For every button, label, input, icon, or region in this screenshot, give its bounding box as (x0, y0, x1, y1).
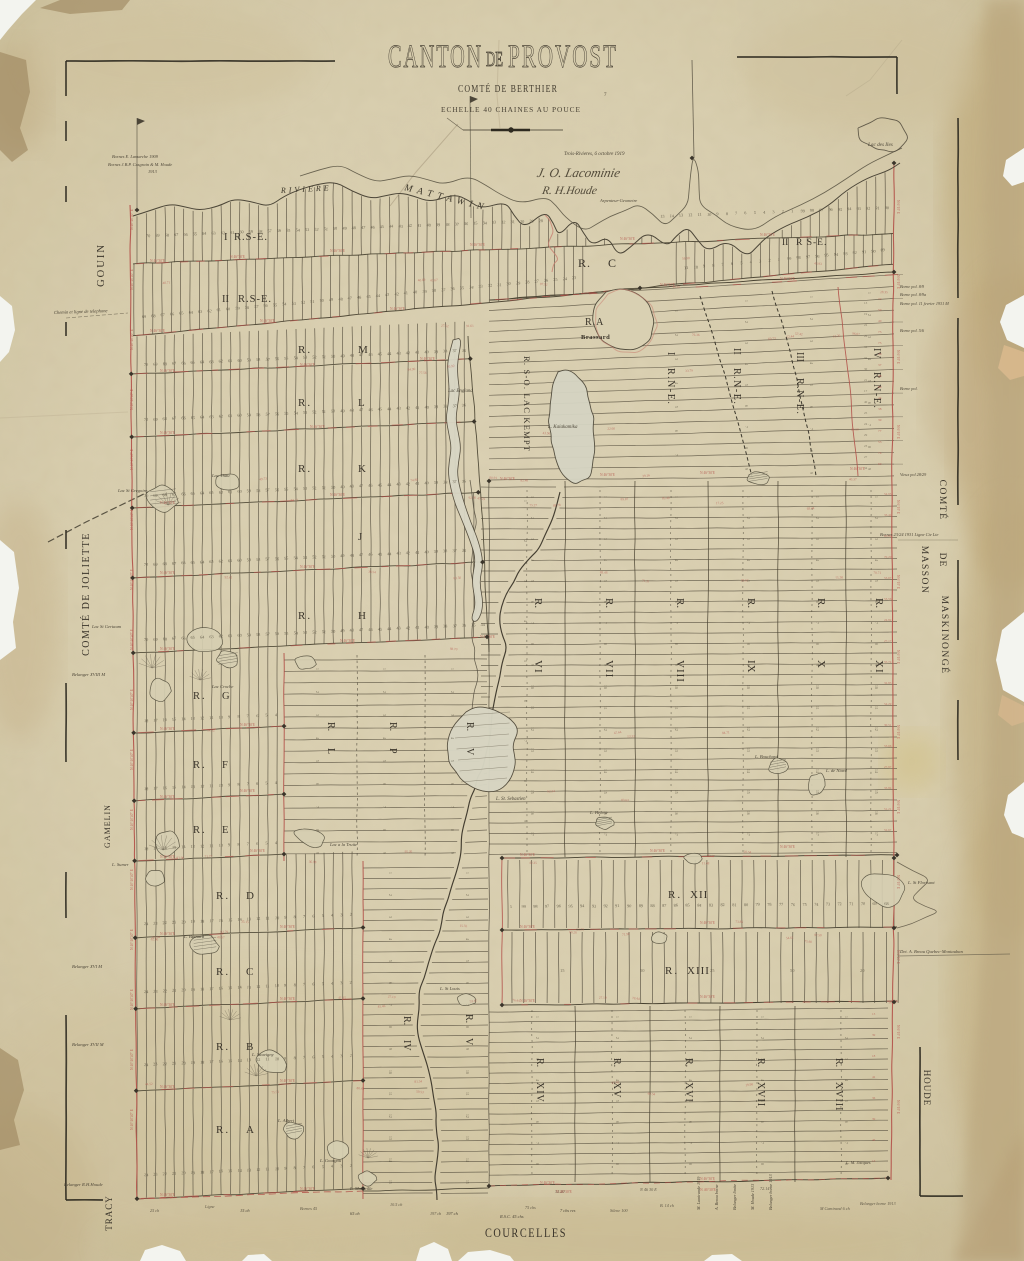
svg-text:16: 16 (163, 845, 167, 850)
svg-text:33.79: 33.79 (685, 369, 693, 373)
svg-text:R.: R. (216, 1041, 230, 1053)
svg-text:72: 72 (837, 901, 842, 906)
svg-text:21: 21 (172, 919, 177, 924)
svg-text:68: 68 (163, 492, 167, 497)
svg-text:62: 62 (219, 490, 224, 495)
svg-text:11: 11 (746, 706, 750, 710)
svg-text:11: 11 (684, 265, 689, 270)
svg-text:73: 73 (878, 330, 882, 334)
svg-text:41: 41 (417, 223, 422, 228)
svg-text:39: 39 (872, 1117, 876, 1121)
svg-text:10: 10 (694, 264, 698, 269)
svg-text:58: 58 (256, 557, 260, 562)
svg-text:58: 58 (256, 632, 261, 637)
svg-text:13: 13 (247, 984, 252, 989)
svg-text:R.: R. (463, 1014, 474, 1023)
svg-text:13: 13 (465, 1136, 469, 1140)
svg-text:95: 95 (568, 904, 572, 909)
svg-text:49: 49 (340, 484, 344, 489)
svg-text:N 46°30'E: N 46°30'E (330, 249, 346, 253)
svg-text:3: 3 (340, 912, 342, 917)
svg-text:9: 9 (284, 1056, 286, 1061)
svg-text:V: V (463, 1038, 474, 1046)
svg-text:51.21: 51.21 (884, 807, 892, 811)
svg-text:F: F (222, 760, 230, 771)
svg-text:2: 2 (465, 894, 469, 896)
svg-text:R.S-E.: R.S-E. (234, 232, 268, 243)
svg-text:7: 7 (303, 914, 305, 919)
svg-text:VIII: VIII (674, 660, 686, 683)
svg-text:17: 17 (530, 832, 534, 836)
svg-text:R.: R. (755, 1058, 766, 1067)
svg-text:N 40°40'40" E: N 40°40'40" E (130, 388, 134, 410)
svg-text:16: 16 (163, 785, 167, 790)
svg-text:15: 15 (660, 214, 665, 219)
svg-text:MASKINONGÉ: MASKINONGÉ (939, 596, 951, 675)
svg-text:N 6°19' E: N 6°19' E (896, 725, 900, 740)
svg-text:N 6°19' E: N 6°19' E (896, 650, 900, 665)
svg-text:7: 7 (247, 781, 249, 786)
svg-text:52: 52 (312, 554, 316, 559)
svg-text:17: 17 (874, 832, 878, 836)
svg-text:36: 36 (462, 623, 466, 628)
svg-text:95: 95 (824, 252, 829, 257)
svg-text:85.40: 85.40 (662, 496, 670, 501)
svg-text:39: 39 (434, 404, 439, 409)
svg-text:R.: R. (193, 691, 207, 702)
svg-text:XVII: XVII (755, 1082, 766, 1107)
svg-text:38: 38 (443, 348, 447, 353)
svg-text:17: 17 (815, 832, 819, 836)
svg-text:92: 92 (866, 206, 870, 211)
svg-text:7: 7 (809, 428, 813, 430)
svg-text:8: 8 (293, 1165, 295, 1170)
svg-text:29: 29 (864, 433, 868, 437)
svg-text:20: 20 (181, 987, 185, 992)
svg-text:N 46°30'E: N 46°30'E (340, 639, 356, 643)
svg-text:45: 45 (378, 552, 383, 557)
svg-text:Belanger XVII M: Belanger XVII M (72, 1042, 105, 1047)
svg-text:7: 7 (603, 622, 607, 624)
svg-text:7: 7 (246, 713, 249, 718)
svg-text:90: 90 (885, 205, 890, 210)
svg-text:65: 65 (191, 560, 195, 565)
svg-text:N 40°40'40" E: N 40°40'40" E (130, 448, 134, 470)
svg-text:43: 43 (385, 292, 390, 297)
svg-text:2: 2 (603, 517, 607, 519)
svg-text:75.27: 75.27 (529, 503, 537, 507)
svg-text:35: 35 (473, 220, 477, 225)
svg-text:6: 6 (535, 1121, 539, 1123)
svg-text:2: 2 (382, 691, 386, 693)
svg-text:R.: R. (401, 1016, 412, 1025)
svg-text:10: 10 (530, 685, 534, 689)
svg-text:4: 4 (688, 1079, 692, 1081)
svg-text:48: 48 (350, 353, 354, 358)
svg-text:8: 8 (615, 1163, 619, 1165)
svg-text:55.74: 55.74 (884, 660, 892, 664)
svg-text:N 46 30 E: N 46 30 E (639, 1187, 657, 1192)
svg-text:53.67: 53.67 (884, 576, 892, 580)
svg-text:51: 51 (322, 409, 326, 414)
svg-text:CANTON: CANTON (388, 39, 483, 75)
svg-text:8: 8 (530, 643, 534, 645)
svg-text:51: 51 (322, 554, 327, 559)
svg-text:42: 42 (394, 291, 398, 296)
svg-text:23: 23 (572, 275, 577, 280)
svg-text:45: 45 (366, 294, 370, 299)
svg-text:92: 92 (853, 250, 857, 255)
svg-text:3: 3 (809, 340, 813, 342)
svg-text:30.51: 30.51 (884, 723, 892, 727)
svg-text:92.42: 92.42 (224, 575, 232, 579)
svg-text:N 40°40'40" E: N 40°40'40" E (130, 328, 134, 350)
svg-text:15: 15 (560, 968, 565, 973)
svg-text:N 46°30'E: N 46°30'E (300, 565, 316, 569)
svg-text:9: 9 (523, 820, 527, 822)
svg-text:53.87: 53.87 (469, 999, 477, 1004)
svg-text:68: 68 (163, 361, 167, 366)
svg-text:12: 12 (688, 212, 692, 217)
svg-text:53: 53 (303, 410, 307, 415)
svg-text:III: III (794, 352, 805, 362)
svg-text:48: 48 (349, 407, 353, 412)
svg-text:93: 93 (857, 206, 861, 211)
svg-text:67: 67 (172, 635, 177, 640)
svg-text:4: 4 (815, 559, 819, 561)
svg-text:45: 45 (378, 627, 382, 632)
svg-text:L: L (325, 748, 336, 754)
svg-text:91.61: 91.61 (466, 324, 474, 328)
svg-text:8: 8 (809, 450, 813, 452)
svg-text:10: 10 (275, 915, 280, 920)
svg-text:93: 93 (592, 903, 597, 908)
svg-text:67: 67 (160, 312, 165, 317)
svg-text:11: 11 (209, 783, 213, 788)
svg-text:12: 12 (603, 727, 607, 731)
svg-text:66: 66 (181, 360, 186, 365)
svg-text:63: 63 (209, 634, 213, 639)
svg-text:N 40°40'40" E: N 40°40'40" E (130, 868, 134, 890)
svg-text:40.69: 40.69 (418, 278, 426, 283)
svg-text:65: 65 (179, 310, 184, 315)
svg-text:4: 4 (315, 737, 319, 739)
svg-text:91: 91 (875, 205, 879, 210)
svg-text:7: 7 (303, 982, 306, 987)
svg-text:23: 23 (153, 1172, 157, 1177)
svg-text:17: 17 (674, 832, 678, 836)
svg-text:50: 50 (331, 485, 335, 490)
svg-text:3: 3 (603, 538, 607, 540)
svg-text:R.: R. (216, 890, 230, 902)
svg-text:Borne pol. 8/9: Borne pol. 8/9 (900, 284, 925, 289)
svg-text:27.52: 27.52 (441, 324, 449, 329)
svg-text:25: 25 (710, 968, 715, 973)
svg-text:DE: DE (486, 47, 503, 71)
svg-text:11: 11 (265, 915, 269, 920)
svg-text:59: 59 (247, 632, 251, 637)
svg-text:16: 16 (219, 918, 224, 923)
svg-text:51: 51 (324, 226, 329, 231)
svg-text:14: 14 (674, 769, 678, 773)
svg-text:1: 1 (530, 496, 534, 498)
svg-text:II: II (222, 294, 229, 305)
svg-text:2: 2 (388, 894, 392, 896)
svg-text:3: 3 (867, 336, 871, 338)
svg-text:8: 8 (465, 1026, 469, 1028)
svg-text:TRACY: TRACY (104, 1195, 114, 1231)
svg-text:15: 15 (388, 1180, 392, 1184)
svg-text:63: 63 (209, 414, 213, 419)
svg-text:11: 11 (530, 706, 534, 710)
svg-text:10: 10 (815, 685, 819, 689)
svg-text:95.20: 95.20 (405, 850, 413, 854)
svg-text:B. 14 ch: B. 14 ch (660, 1203, 674, 1208)
svg-text:65 ch: 65 ch (350, 1211, 360, 1216)
svg-text:22: 22 (864, 323, 868, 327)
svg-text:12: 12 (256, 1167, 260, 1172)
svg-text:R.: R. (216, 966, 230, 978)
svg-text:15: 15 (465, 1180, 469, 1184)
svg-text:L. Kaiakamika: L. Kaiakamika (547, 425, 578, 430)
svg-text:36: 36 (462, 348, 467, 353)
svg-text:12: 12 (530, 727, 534, 731)
svg-text:IV: IV (401, 1040, 412, 1051)
svg-text:34: 34 (864, 345, 868, 349)
svg-text:28.87: 28.87 (741, 578, 749, 582)
svg-text:56: 56 (275, 631, 280, 636)
svg-text:13.33: 13.33 (627, 734, 635, 738)
svg-text:36: 36 (450, 286, 454, 291)
svg-text:99: 99 (522, 904, 526, 909)
svg-text:12: 12 (388, 1114, 392, 1118)
svg-text:71.90: 71.90 (622, 932, 630, 937)
svg-text:5: 5 (674, 406, 678, 408)
svg-text:69: 69 (155, 233, 159, 238)
svg-text:11: 11 (815, 706, 819, 710)
svg-text:Bornes E. Lamarche 1909: Bornes E. Lamarche 1909 (112, 154, 159, 159)
svg-text:23: 23 (153, 1061, 158, 1066)
svg-text:68: 68 (165, 232, 170, 237)
svg-text:46: 46 (368, 483, 373, 488)
svg-text:55: 55 (286, 228, 290, 233)
svg-text:8: 8 (294, 982, 296, 987)
svg-text:7: 7 (450, 806, 454, 808)
svg-text:10: 10 (219, 843, 223, 848)
svg-text:N 40°40'40" E: N 40°40'40" E (130, 808, 134, 830)
svg-text:L. St Florisant: L. St Florisant (907, 880, 935, 885)
svg-text:35: 35 (460, 285, 464, 290)
svg-text:L. de Niard: L. de Niard (825, 768, 848, 773)
svg-text:N 46°30'E: N 46°30'E (160, 431, 176, 435)
svg-text:70: 70 (144, 493, 149, 498)
svg-text:8: 8 (744, 447, 748, 449)
svg-text:18: 18 (144, 846, 149, 851)
svg-text:47: 47 (359, 552, 364, 557)
svg-text:57: 57 (265, 412, 269, 417)
svg-text:R.: R. (815, 598, 827, 608)
svg-text:46: 46 (357, 295, 361, 300)
svg-text:20: 20 (181, 1060, 186, 1065)
svg-text:6: 6 (844, 1121, 848, 1123)
svg-text:15: 15 (228, 985, 233, 990)
svg-text:36: 36 (462, 479, 466, 484)
svg-text:39: 39 (434, 624, 438, 629)
svg-text:2: 2 (350, 912, 352, 917)
svg-text:68: 68 (884, 901, 888, 906)
svg-text:N 46°30'E: N 46°30'E (230, 255, 246, 259)
svg-text:1: 1 (815, 496, 819, 498)
svg-text:4: 4 (744, 363, 748, 365)
svg-text:3: 3 (772, 209, 774, 214)
svg-text:Brassard: Brassard (581, 334, 610, 341)
svg-text:62: 62 (219, 414, 223, 419)
svg-text:60: 60 (237, 557, 242, 562)
svg-text:66.50: 66.50 (851, 428, 859, 432)
svg-text:63: 63 (209, 559, 214, 564)
svg-text:7: 7 (744, 426, 748, 428)
svg-text:50: 50 (319, 298, 324, 303)
svg-text:52: 52 (301, 300, 305, 305)
svg-text:77: 77 (779, 902, 783, 907)
svg-text:19: 19 (191, 1060, 195, 1065)
svg-text:N 6°19' E: N 6°19' E (896, 350, 900, 365)
svg-text:C: C (608, 256, 616, 270)
svg-text:6: 6 (256, 713, 258, 718)
svg-text:58: 58 (256, 412, 260, 417)
svg-text:42: 42 (406, 481, 410, 486)
svg-text:2: 2 (523, 540, 527, 542)
svg-text:86: 86 (673, 902, 678, 907)
svg-text:58: 58 (256, 488, 260, 493)
svg-text:7: 7 (760, 1142, 764, 1144)
svg-text:39: 39 (434, 349, 438, 354)
svg-text:R.N-E.: R.N-E. (794, 378, 805, 415)
svg-text:67: 67 (172, 415, 177, 420)
svg-text:37: 37 (878, 363, 882, 367)
svg-text:N 46°30'E: N 46°30'E (390, 307, 406, 311)
svg-text:45.46: 45.46 (377, 1004, 385, 1009)
svg-text:12: 12 (256, 1057, 260, 1062)
svg-text:53: 53 (303, 630, 307, 635)
svg-text:8: 8 (388, 1026, 392, 1028)
svg-text:N 40°40'40" E: N 40°40'40" E (130, 208, 134, 230)
svg-text:5: 5 (809, 384, 813, 386)
svg-text:89: 89 (880, 247, 885, 252)
svg-text:R.: R. (745, 598, 757, 608)
svg-text:N 46°30'E: N 46°30'E (700, 471, 716, 475)
svg-text:1: 1 (523, 500, 527, 502)
svg-text:69: 69 (153, 637, 158, 642)
svg-text:VI: VI (532, 660, 544, 674)
svg-text:99: 99 (800, 208, 805, 213)
svg-text:6: 6 (688, 1121, 692, 1123)
svg-text:76.36: 76.36 (692, 333, 700, 337)
svg-text:9: 9 (228, 842, 230, 847)
svg-text:I: I (224, 232, 228, 243)
svg-text:13: 13 (603, 748, 607, 752)
svg-text:38: 38 (443, 404, 447, 409)
svg-text:R.: R. (216, 1124, 230, 1136)
svg-text:83.50: 83.50 (453, 576, 461, 581)
svg-text:20: 20 (181, 919, 185, 924)
svg-text:70: 70 (146, 233, 150, 238)
svg-text:82.48: 82.48 (520, 478, 528, 482)
svg-text:39: 39 (436, 222, 440, 227)
svg-text:18: 18 (872, 1054, 876, 1058)
svg-text:6: 6 (744, 405, 748, 407)
svg-text:73.13: 73.13 (291, 498, 299, 502)
svg-text:Bornes 45: Bornes 45 (300, 1206, 317, 1211)
svg-text:40: 40 (424, 404, 429, 409)
svg-text:16: 16 (219, 1059, 223, 1064)
svg-text:Bornes J.B.P. Casgrain & M. Ho: Bornes J.B.P. Casgrain & M. Houde (108, 162, 172, 167)
svg-text:16: 16 (530, 811, 534, 815)
svg-text:E: E (222, 825, 230, 836)
svg-text:49: 49 (342, 226, 347, 231)
svg-text:73.86: 73.86 (735, 920, 743, 924)
svg-text:36: 36 (462, 402, 467, 407)
svg-text:4: 4 (530, 559, 534, 561)
svg-text:67: 67 (172, 491, 177, 496)
svg-text:37: 37 (453, 623, 458, 628)
svg-text:17: 17 (153, 718, 157, 723)
svg-text:80.45: 80.45 (356, 1086, 364, 1091)
svg-text:59: 59 (235, 306, 239, 311)
svg-text:97: 97 (545, 903, 550, 908)
svg-text:30: 30 (520, 219, 524, 224)
svg-text:9: 9 (744, 468, 748, 470)
svg-text:47: 47 (348, 295, 352, 300)
svg-text:Belanger XVIII M: Belanger XVIII M (72, 672, 106, 677)
svg-text:R.N-E.: R.N-E. (665, 368, 676, 405)
svg-text:71.77: 71.77 (205, 854, 213, 858)
svg-text:N 46°30'E: N 46°30'E (330, 493, 346, 497)
svg-text:69: 69 (872, 901, 877, 906)
svg-text:17: 17 (746, 832, 750, 836)
svg-text:3: 3 (759, 259, 761, 264)
svg-text:II: II (731, 348, 742, 355)
svg-text:6: 6 (388, 982, 392, 984)
svg-text:5: 5 (322, 1054, 324, 1059)
svg-text:6: 6 (450, 783, 454, 785)
svg-text:9: 9 (228, 714, 230, 719)
svg-text:1: 1 (388, 872, 392, 874)
svg-text:R.: R. (464, 722, 475, 731)
svg-text:46: 46 (368, 551, 373, 556)
svg-text:L. M. Jacques: L. M. Jacques (845, 1160, 871, 1165)
svg-text:56.98: 56.98 (682, 256, 690, 261)
svg-text:5: 5 (388, 960, 392, 962)
svg-text:4: 4 (465, 938, 469, 940)
svg-text:16: 16 (874, 811, 878, 815)
svg-text:N 46°30'E: N 46°30'E (280, 1079, 296, 1083)
svg-text:72.14: 72.14 (760, 1186, 769, 1191)
svg-text:76: 76 (791, 902, 796, 907)
svg-text:10: 10 (874, 685, 878, 689)
svg-text:94.90: 94.90 (407, 367, 415, 372)
svg-text:N 46°30'E: N 46°30'E (700, 1177, 716, 1181)
svg-text:26: 26 (864, 334, 868, 338)
svg-text:91: 91 (615, 903, 620, 908)
svg-text:41: 41 (415, 550, 419, 555)
svg-text:3: 3 (815, 538, 819, 540)
svg-text:N 46°30'E: N 46°30'E (700, 995, 716, 999)
svg-text:77.56: 77.56 (419, 371, 427, 375)
svg-text:25 ch: 25 ch (150, 1208, 159, 1213)
svg-text:13: 13 (247, 1057, 251, 1062)
svg-text:N 46°30'E: N 46°30'E (520, 999, 536, 1003)
